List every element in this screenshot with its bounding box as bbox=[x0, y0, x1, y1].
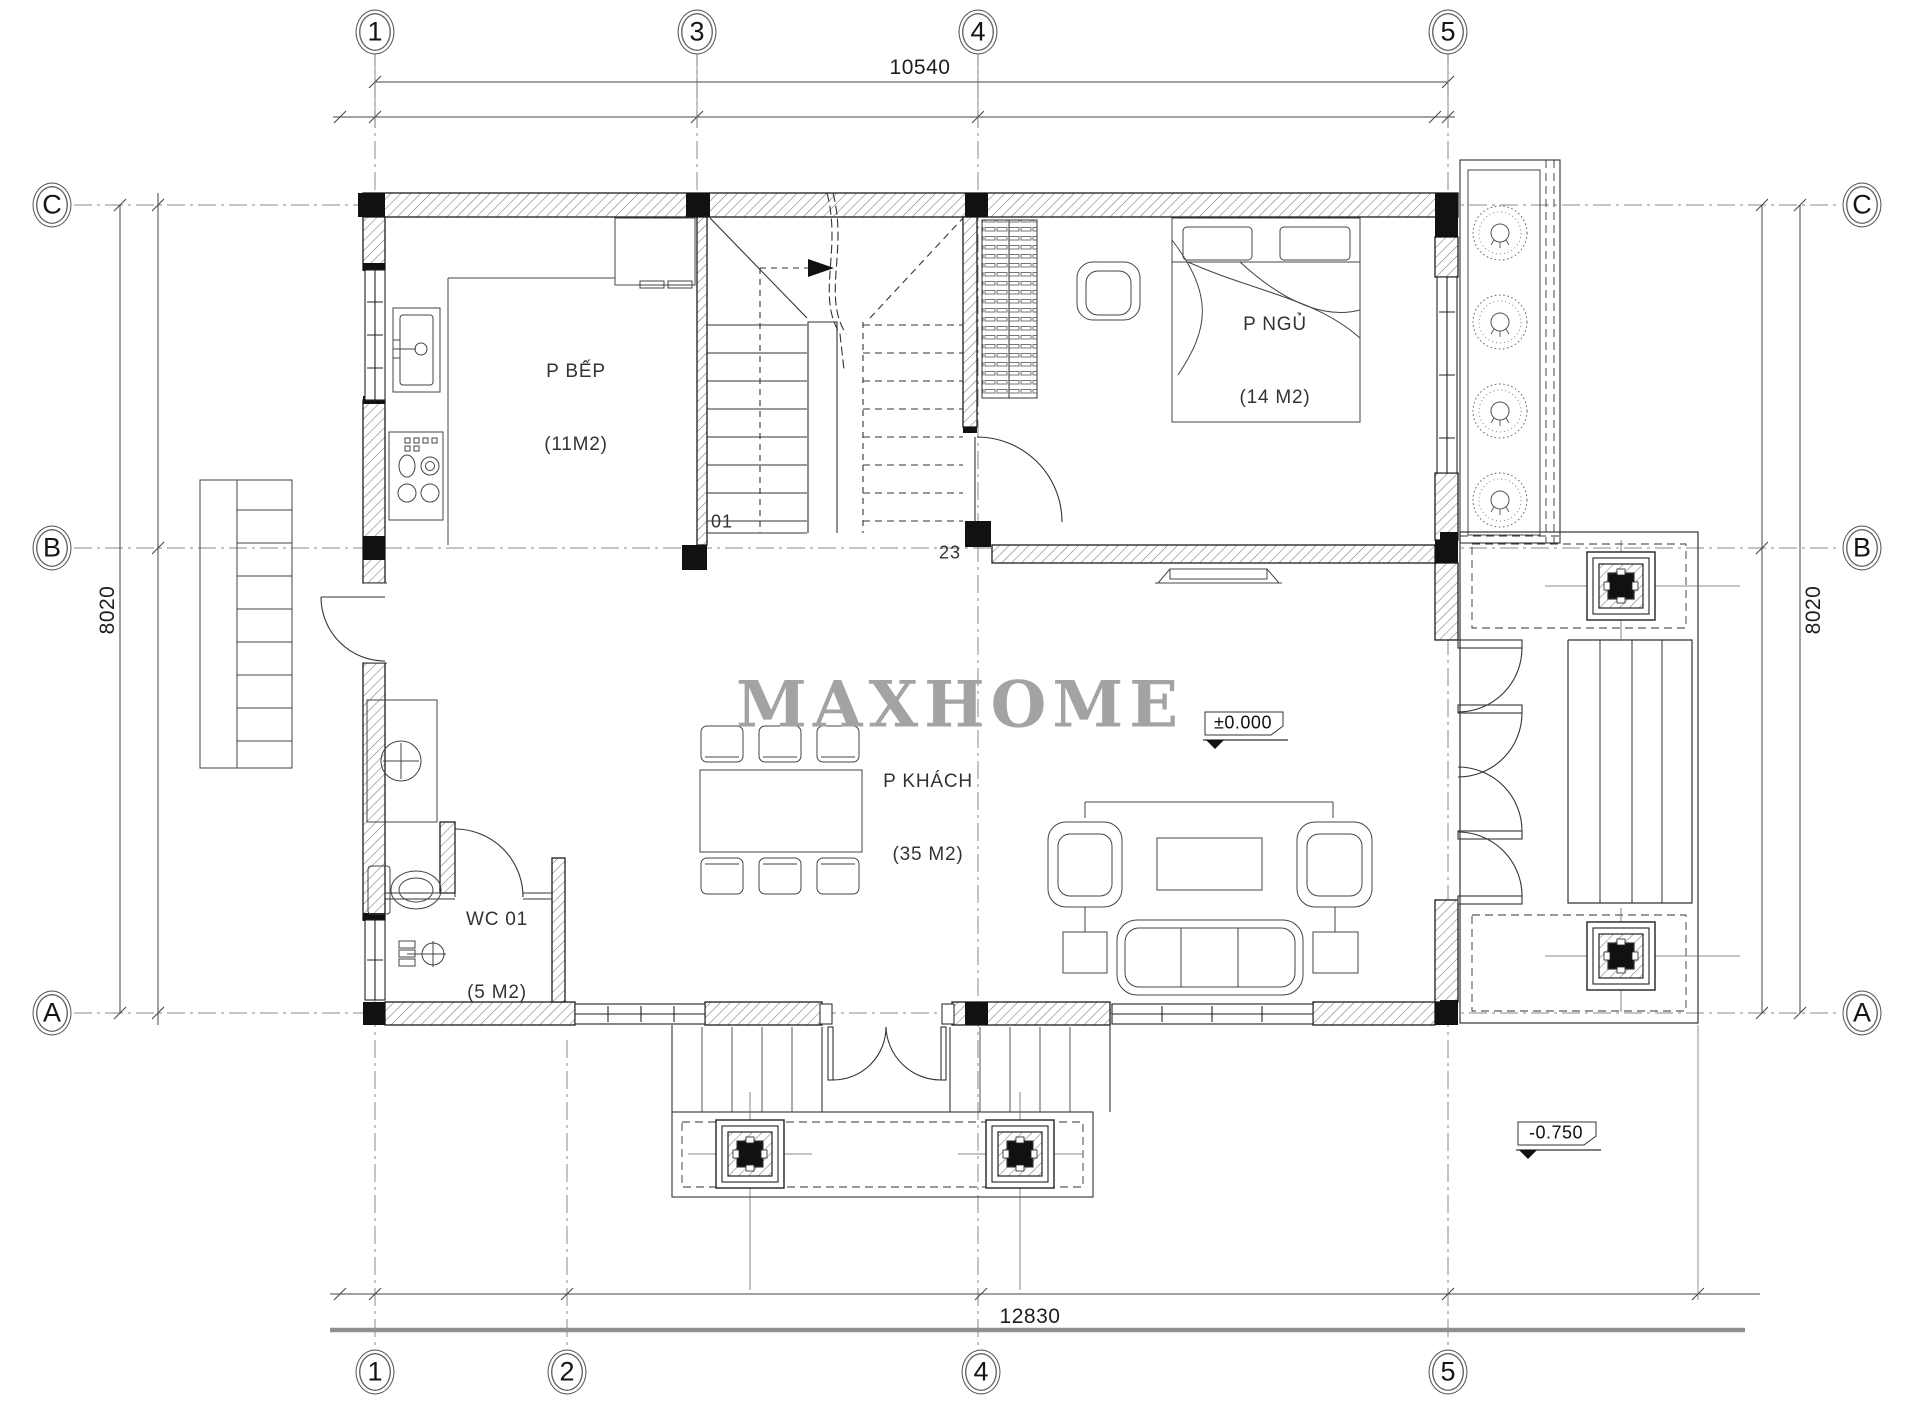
plant bbox=[1473, 206, 1527, 260]
dimension-top: 10540 bbox=[890, 56, 951, 80]
dimension-bottom: 12830 bbox=[1000, 1305, 1061, 1329]
entrance-porch bbox=[672, 1025, 1110, 1290]
side-table-right bbox=[1313, 932, 1358, 973]
side-steps bbox=[200, 480, 292, 768]
porch-column bbox=[986, 1120, 1054, 1188]
sofa bbox=[1117, 920, 1303, 995]
coffee-table bbox=[1157, 838, 1262, 890]
porch-column bbox=[716, 1120, 784, 1188]
entrance-double-door bbox=[820, 1004, 954, 1080]
terrace-folding-doors bbox=[1458, 640, 1522, 904]
grid-bubble-left-b: B bbox=[33, 526, 72, 571]
grid-bubble-left-c: C bbox=[33, 183, 72, 228]
armchair-right bbox=[1297, 822, 1372, 907]
rug-edge bbox=[1085, 802, 1333, 818]
room-label-kitchen: P BẾP (11M2) bbox=[544, 311, 608, 481]
dimension-right: 8020 bbox=[1802, 586, 1826, 635]
grid-bubble-right-c: C bbox=[1843, 183, 1882, 228]
grid-bubble-bottom-4: 4 bbox=[962, 1350, 1001, 1395]
bedroom-door bbox=[975, 437, 1062, 522]
dining-table bbox=[700, 770, 862, 852]
room-label-wc: WC 01 (5 M2) bbox=[466, 859, 528, 1029]
armchair-left bbox=[1048, 822, 1122, 907]
grid-bubble-right-a: A bbox=[1843, 991, 1882, 1036]
level-porch-text: -0.750 bbox=[1529, 1123, 1583, 1144]
grid-bubble-top-4: 4 bbox=[959, 10, 998, 55]
terrace-column bbox=[1587, 552, 1655, 620]
tv-console bbox=[1155, 569, 1282, 583]
room-area: (35 M2) bbox=[883, 842, 973, 866]
stair-label-lower: 01 bbox=[711, 512, 733, 533]
cooktop bbox=[389, 432, 443, 520]
grid-bubble-left-a: A bbox=[33, 991, 72, 1036]
side-door bbox=[321, 583, 387, 663]
planter-strip bbox=[1460, 160, 1560, 543]
grid-bubble-bottom-1: 1 bbox=[356, 1350, 395, 1395]
fridge bbox=[615, 218, 695, 285]
room-label-bedroom: P NGỦ (14 M2) bbox=[1239, 264, 1310, 434]
terrace-column bbox=[1587, 922, 1655, 990]
terrace bbox=[1460, 532, 1740, 1023]
room-name: P BẾP bbox=[544, 360, 608, 384]
room-name: WC 01 bbox=[466, 908, 528, 932]
stair-label-upper: 23 bbox=[939, 543, 961, 564]
dimension-left: 8020 bbox=[96, 586, 120, 635]
room-name: P NGỦ bbox=[1239, 313, 1310, 337]
floor-plan-canvas: MAXHOME 1 3 4 5 1 2 4 5 C B A C B A 1054… bbox=[0, 0, 1919, 1409]
kitchen-window bbox=[365, 270, 385, 400]
grid-bubble-bottom-2: 2 bbox=[548, 1350, 587, 1395]
room-area: (5 M2) bbox=[466, 980, 528, 1004]
pillow bbox=[1183, 227, 1252, 260]
kitchen-fixtures bbox=[389, 218, 695, 545]
kitchen-sink bbox=[393, 308, 440, 392]
pillow bbox=[1280, 227, 1350, 260]
bedroom-window bbox=[1437, 277, 1457, 473]
front-window-left bbox=[575, 1004, 705, 1024]
sofa-set bbox=[1048, 802, 1372, 995]
grid-bubble-top-1: 1 bbox=[356, 10, 395, 55]
dining-set bbox=[700, 726, 862, 894]
grid-bubble-top-5: 5 bbox=[1429, 10, 1468, 55]
side-table-left bbox=[1063, 932, 1107, 973]
room-area: (11M2) bbox=[544, 432, 608, 456]
wc-window bbox=[365, 920, 385, 1000]
front-window-right bbox=[1112, 1004, 1313, 1024]
staircase bbox=[707, 193, 963, 533]
room-area: (14 M2) bbox=[1239, 385, 1310, 409]
plant bbox=[1473, 473, 1527, 527]
plant bbox=[1473, 295, 1527, 349]
floor-drain bbox=[399, 941, 446, 967]
grid-bubble-top-3: 3 bbox=[678, 10, 717, 55]
level-main-text: ±0.000 bbox=[1214, 713, 1272, 734]
plant bbox=[1473, 384, 1527, 438]
grid-bubble-bottom-5: 5 bbox=[1429, 1350, 1468, 1395]
grid-bubble-right-b: B bbox=[1843, 526, 1882, 571]
room-label-living: P KHÁCH (35 M2) bbox=[883, 721, 973, 891]
room-name: P KHÁCH bbox=[883, 770, 973, 794]
level-markers bbox=[1203, 712, 1601, 1159]
